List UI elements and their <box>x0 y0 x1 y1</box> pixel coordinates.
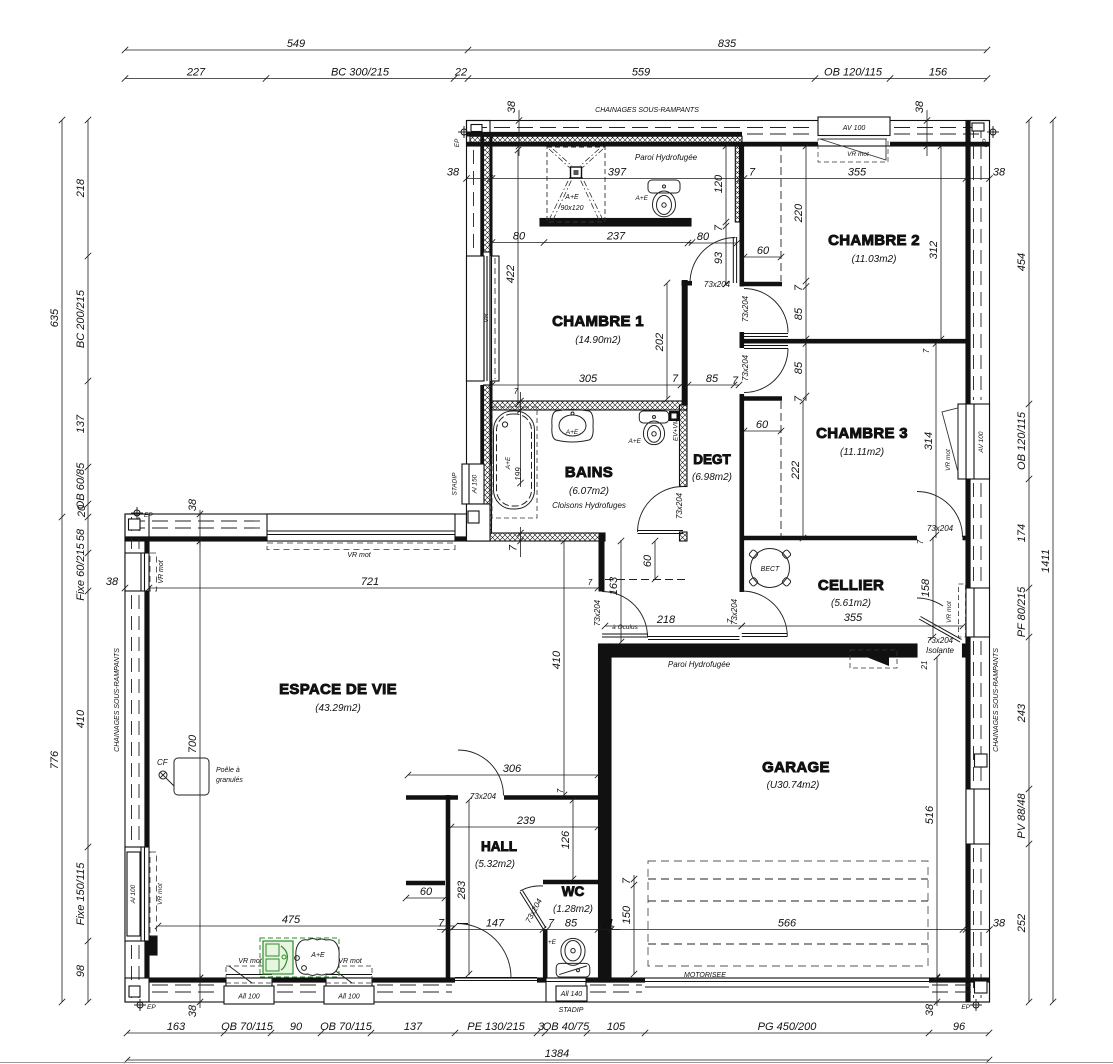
svg-text:635: 635 <box>49 308 61 327</box>
svg-text:Al 100: Al 100 <box>130 884 137 904</box>
svg-text:VR mot: VR mot <box>945 448 952 471</box>
svg-text:21: 21 <box>601 918 614 930</box>
svg-text:721: 721 <box>361 576 379 588</box>
svg-text:(6.98m2): (6.98m2) <box>692 472 732 483</box>
svg-text:38: 38 <box>506 100 518 113</box>
svg-text:CF: CF <box>157 758 169 767</box>
svg-text:137: 137 <box>404 1021 423 1033</box>
svg-text:7: 7 <box>548 918 555 930</box>
svg-text:OB 120/115: OB 120/115 <box>1016 411 1028 470</box>
svg-text:397: 397 <box>608 167 627 179</box>
svg-text:239: 239 <box>516 815 535 827</box>
svg-text:Paroi Hydrofugée: Paroi Hydrofugée <box>635 153 698 162</box>
svg-text:PF 80/215: PF 80/215 <box>1016 586 1028 637</box>
svg-text:60: 60 <box>642 554 654 567</box>
svg-text:EP: EP <box>454 138 461 147</box>
svg-text:All 140: All 140 <box>560 991 583 998</box>
svg-text:EP: EP <box>982 138 989 147</box>
svg-text:VR mot: VR mot <box>338 958 362 965</box>
svg-text:(1.28m2): (1.28m2) <box>553 904 593 915</box>
svg-text:DEGT: DEGT <box>693 452 731 467</box>
svg-text:AV 100: AV 100 <box>842 125 866 132</box>
svg-text:7: 7 <box>588 578 593 587</box>
svg-text:A+E: A+E <box>505 456 512 470</box>
svg-text:85: 85 <box>706 373 719 385</box>
svg-text:Poêle à: Poêle à <box>216 767 240 774</box>
svg-text:38: 38 <box>993 918 1006 930</box>
svg-text:73x204: 73x204 <box>741 354 750 381</box>
svg-text:A+E: A+E <box>310 952 325 959</box>
svg-text:7: 7 <box>672 373 679 385</box>
svg-text:CHAMBRE 1: CHAMBRE 1 <box>552 313 644 330</box>
svg-text:38: 38 <box>447 167 460 179</box>
svg-text:AV 100: AV 100 <box>978 431 985 453</box>
svg-text:7: 7 <box>621 877 633 884</box>
svg-text:163: 163 <box>608 576 620 595</box>
svg-text:A+E: A+E <box>543 939 557 946</box>
svg-text:Fixe 150/115: Fixe 150/115 <box>75 862 87 926</box>
svg-text:73x204: 73x204 <box>927 524 954 533</box>
svg-text:PG 450/200: PG 450/200 <box>758 1021 818 1033</box>
svg-text:A+E: A+E <box>628 438 642 445</box>
svg-text:7: 7 <box>916 539 925 544</box>
svg-text:Fixe 60/215: Fixe 60/215 <box>75 542 87 600</box>
svg-text:(6.07m2): (6.07m2) <box>569 486 609 497</box>
svg-text:475: 475 <box>282 914 301 926</box>
svg-text:CHAINAGES SOUS-RAMPANTS: CHAINAGES SOUS-RAMPANTS <box>114 648 121 752</box>
svg-text:22: 22 <box>454 67 467 79</box>
svg-text:126: 126 <box>560 830 572 849</box>
svg-text:58: 58 <box>75 528 87 541</box>
svg-text:OB 40/75: OB 40/75 <box>543 1021 590 1033</box>
svg-text:120: 120 <box>713 174 725 193</box>
svg-text:516: 516 <box>924 805 936 824</box>
svg-text:105: 105 <box>607 1021 626 1033</box>
svg-text:PE 130/215: PE 130/215 <box>467 1021 525 1033</box>
svg-text:283: 283 <box>456 880 468 900</box>
svg-text:38: 38 <box>106 576 119 588</box>
svg-text:CHAMBRE 2: CHAMBRE 2 <box>828 232 920 249</box>
svg-text:7: 7 <box>713 224 725 231</box>
svg-text:199: 199 <box>514 467 523 481</box>
svg-text:21: 21 <box>920 661 929 671</box>
svg-text:VR mot: VR mot <box>847 151 870 158</box>
svg-text:137: 137 <box>75 414 87 433</box>
svg-text:312: 312 <box>928 241 940 259</box>
svg-text:174: 174 <box>1016 524 1028 542</box>
svg-text:355: 355 <box>848 167 867 179</box>
svg-text:1411: 1411 <box>1040 549 1052 573</box>
svg-text:7: 7 <box>508 544 520 551</box>
svg-text:80: 80 <box>513 231 526 243</box>
svg-text:(11.11m2): (11.11m2) <box>840 447 884 458</box>
svg-text:237: 237 <box>606 231 626 243</box>
svg-text:7: 7 <box>732 375 739 387</box>
svg-text:STADIP: STADIP <box>452 472 459 496</box>
svg-text:38: 38 <box>187 498 199 511</box>
svg-text:410: 410 <box>75 709 87 728</box>
svg-text:163: 163 <box>167 1021 186 1033</box>
svg-text:96: 96 <box>953 1021 966 1033</box>
svg-text:73x204: 73x204 <box>730 598 739 625</box>
svg-text:90x120: 90x120 <box>561 205 584 212</box>
svg-text:150: 150 <box>621 905 633 924</box>
svg-text:7: 7 <box>438 918 445 930</box>
svg-text:MOTORISEE: MOTORISEE <box>684 972 726 979</box>
svg-text:85: 85 <box>565 918 578 930</box>
svg-text:73x204: 73x204 <box>593 599 602 626</box>
svg-text:PV 88/48: PV 88/48 <box>1016 792 1028 838</box>
svg-text:OB 70/115: OB 70/115 <box>320 1021 373 1033</box>
svg-text:All 100: All 100 <box>237 994 260 1001</box>
svg-text:306: 306 <box>503 763 522 775</box>
svg-text:VR mot: VR mot <box>946 600 953 623</box>
svg-text:VR mot: VR mot <box>347 552 371 559</box>
svg-text:202: 202 <box>654 333 666 352</box>
svg-text:776: 776 <box>49 750 61 769</box>
svg-text:252: 252 <box>1016 914 1028 933</box>
svg-text:73x204: 73x204 <box>741 295 750 322</box>
svg-text:(5.32m2): (5.32m2) <box>475 859 515 870</box>
svg-text:422: 422 <box>505 265 517 283</box>
svg-text:OB 70/115: OB 70/115 <box>221 1021 274 1033</box>
svg-text:OB 60/85: OB 60/85 <box>75 462 87 509</box>
svg-text:220: 220 <box>793 203 805 223</box>
svg-text:243: 243 <box>1016 703 1028 723</box>
svg-text:Al 150: Al 150 <box>472 474 479 494</box>
svg-text:20: 20 <box>76 504 88 518</box>
svg-text:559: 559 <box>632 67 650 79</box>
svg-text:(14.90m2): (14.90m2) <box>575 335 621 346</box>
svg-text:73x204: 73x204 <box>675 492 684 519</box>
svg-text:OB 120/115: OB 120/115 <box>824 67 883 79</box>
svg-text:ESPACE DE VIE: ESPACE DE VIE <box>279 681 397 698</box>
svg-text:EP: EP <box>144 512 153 519</box>
svg-text:314: 314 <box>923 432 935 450</box>
svg-text:7: 7 <box>922 348 931 353</box>
svg-text:(5.61m2): (5.61m2) <box>831 598 871 609</box>
svg-text:98: 98 <box>75 964 87 977</box>
svg-text:60: 60 <box>420 886 433 898</box>
svg-text:Paroi Hydrofugée: Paroi Hydrofugée <box>668 660 731 669</box>
svg-text:85: 85 <box>793 307 805 320</box>
svg-text:CHAMBRE 3: CHAMBRE 3 <box>816 425 908 442</box>
svg-text:355: 355 <box>844 612 863 624</box>
svg-text:(11.03m2): (11.03m2) <box>852 254 897 265</box>
svg-text:VR mot: VR mot <box>158 559 165 583</box>
svg-text:835: 835 <box>718 38 737 50</box>
svg-text:73x204: 73x204 <box>704 280 731 289</box>
svg-text:38: 38 <box>914 100 926 113</box>
svg-text:Isolante: Isolante <box>926 646 955 655</box>
svg-text:BECT: BECT <box>761 566 780 573</box>
svg-text:147: 147 <box>486 918 505 930</box>
svg-text:222: 222 <box>790 461 802 480</box>
svg-text:93: 93 <box>713 251 725 264</box>
svg-text:VR: VR <box>483 313 490 322</box>
svg-text:549: 549 <box>287 38 305 50</box>
svg-text:A+E: A+E <box>564 194 579 201</box>
svg-text:(43.29m2): (43.29m2) <box>315 703 361 714</box>
svg-text:73x204: 73x204 <box>470 792 497 801</box>
svg-text:granulés: granulés <box>216 777 243 784</box>
svg-text:700: 700 <box>187 734 199 753</box>
svg-text:158: 158 <box>920 578 932 597</box>
svg-text:A+E: A+E <box>565 429 579 436</box>
svg-text:566: 566 <box>778 918 797 930</box>
svg-text:VR mot: VR mot <box>157 882 164 905</box>
svg-text:7: 7 <box>556 788 565 793</box>
svg-text:80: 80 <box>697 231 710 243</box>
svg-text:HALL: HALL <box>481 839 517 854</box>
svg-text:7: 7 <box>749 167 756 179</box>
svg-text:EV+VM: EV+VM <box>673 418 680 441</box>
svg-text:VR mot: VR mot <box>238 958 262 965</box>
svg-text:7: 7 <box>793 284 805 291</box>
svg-text:CHAINAGES SOUS-RAMPANTS: CHAINAGES SOUS-RAMPANTS <box>595 107 699 114</box>
svg-text:7: 7 <box>514 387 519 396</box>
svg-text:410: 410 <box>551 650 563 669</box>
svg-text:All 100: All 100 <box>337 994 360 1001</box>
svg-text:73x204: 73x204 <box>927 636 954 645</box>
svg-text:218: 218 <box>75 178 87 198</box>
svg-text:1384: 1384 <box>545 1048 569 1060</box>
svg-text:90: 90 <box>290 1021 303 1033</box>
svg-text:60: 60 <box>756 419 769 431</box>
svg-text:38: 38 <box>924 1003 936 1016</box>
svg-text:Cloisons Hydrofuges: Cloisons Hydrofuges <box>552 501 626 510</box>
svg-text:60: 60 <box>757 245 770 257</box>
svg-text:A+E: A+E <box>635 195 649 202</box>
svg-text:EP: EP <box>961 1004 970 1011</box>
svg-text:85: 85 <box>793 361 805 374</box>
svg-text:305: 305 <box>579 373 598 385</box>
svg-text:à Oculus: à Oculus <box>612 624 638 631</box>
svg-text:BC 300/215: BC 300/215 <box>331 67 390 79</box>
svg-text:(U30.74m2): (U30.74m2) <box>767 780 820 791</box>
svg-text:38: 38 <box>187 1004 199 1017</box>
svg-text:CELLIER: CELLIER <box>818 577 884 594</box>
svg-text:BC 200/215: BC 200/215 <box>75 289 87 348</box>
svg-text:BAINS: BAINS <box>565 464 613 481</box>
svg-text:156: 156 <box>929 67 948 79</box>
svg-text:38: 38 <box>993 167 1006 179</box>
svg-text:GARAGE: GARAGE <box>762 759 830 776</box>
svg-text:454: 454 <box>1016 253 1028 271</box>
svg-text:STADIP: STADIP <box>559 1007 584 1014</box>
svg-text:227: 227 <box>186 67 206 79</box>
svg-text:WC: WC <box>562 884 585 899</box>
svg-text:EP: EP <box>147 1004 156 1011</box>
svg-text:218: 218 <box>656 614 676 626</box>
svg-text:CHAINAGES SOUS-RAMPANTS: CHAINAGES SOUS-RAMPANTS <box>993 648 1000 752</box>
